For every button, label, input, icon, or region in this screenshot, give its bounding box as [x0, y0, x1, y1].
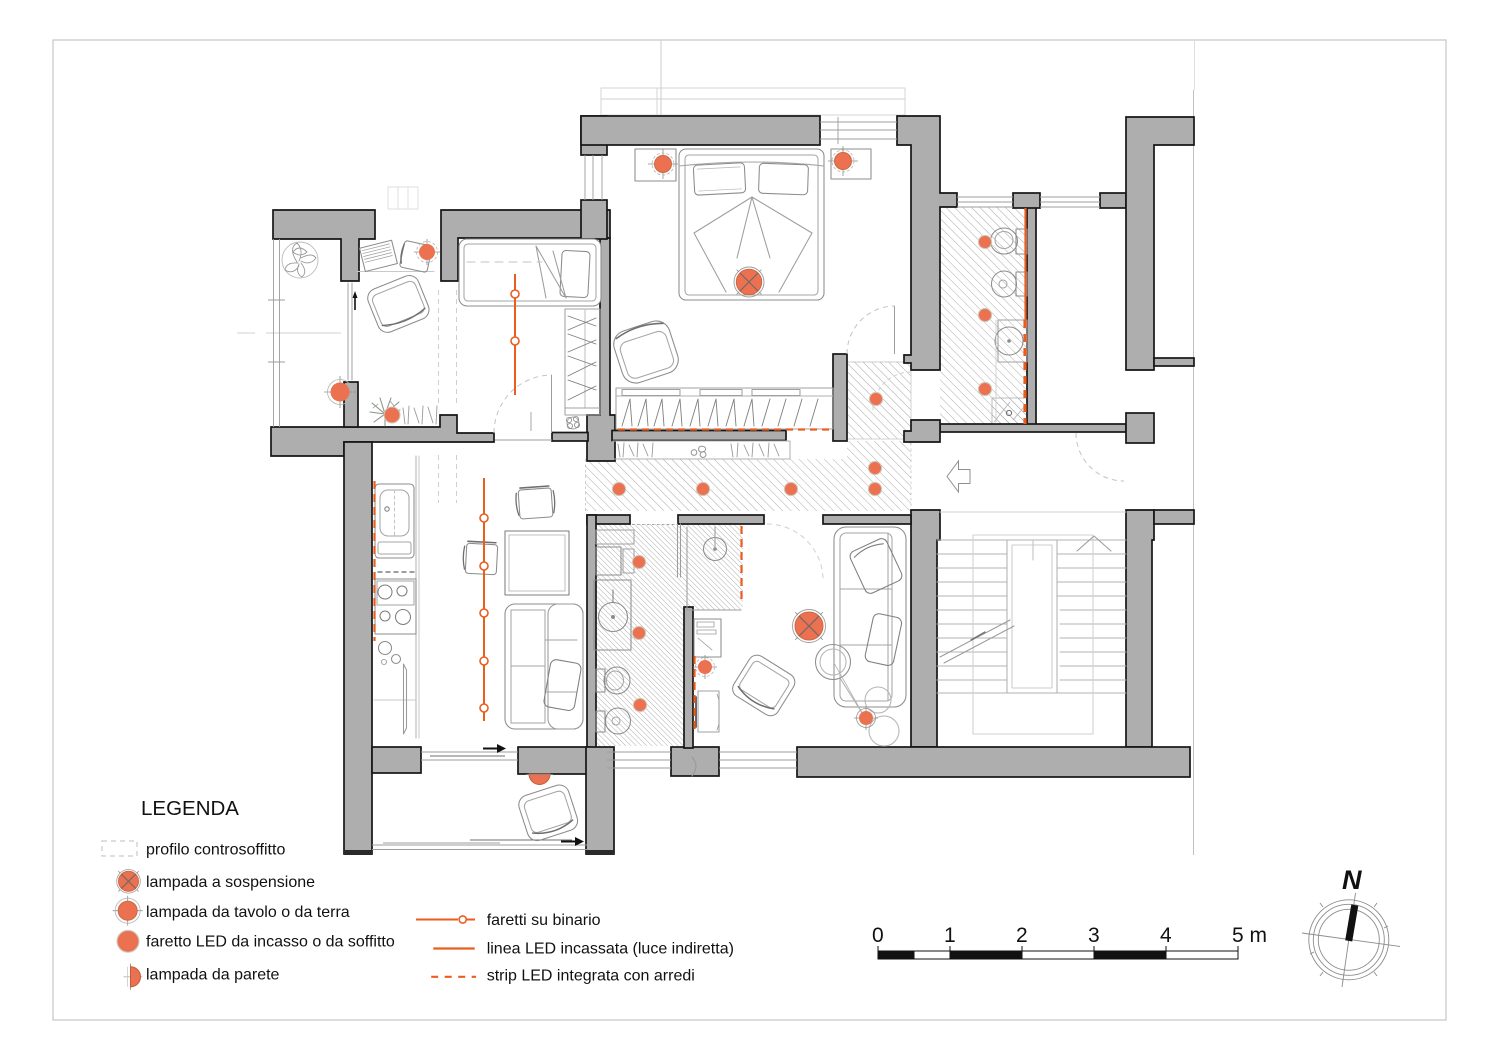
- svg-text:linea LED incassata (luce indi: linea LED incassata (luce indiretta): [487, 940, 734, 957]
- svg-text:lampada a sospensione: lampada a sospensione: [146, 874, 315, 891]
- svg-text:profilo controsoffitto: profilo controsoffitto: [146, 842, 285, 859]
- svg-text:lampada da tavolo o da terra: lampada da tavolo o da terra: [146, 904, 350, 921]
- svg-text:lampada da parete: lampada da parete: [146, 967, 280, 984]
- svg-text:faretto LED da incasso o da so: faretto LED da incasso o da soffitto: [146, 934, 395, 951]
- svg-text:LEGENDA: LEGENDA: [141, 797, 239, 820]
- svg-text:5 m: 5 m: [1232, 924, 1267, 947]
- svg-text:N: N: [1342, 865, 1362, 895]
- svg-text:strip LED integrata con arredi: strip LED integrata con arredi: [487, 968, 695, 985]
- svg-text:4: 4: [1160, 924, 1172, 947]
- svg-text:3: 3: [1088, 924, 1100, 947]
- svg-text:2: 2: [1016, 924, 1028, 947]
- svg-text:0: 0: [872, 924, 884, 947]
- svg-text:faretti su binario: faretti su binario: [487, 912, 601, 929]
- svg-text:1: 1: [944, 924, 956, 947]
